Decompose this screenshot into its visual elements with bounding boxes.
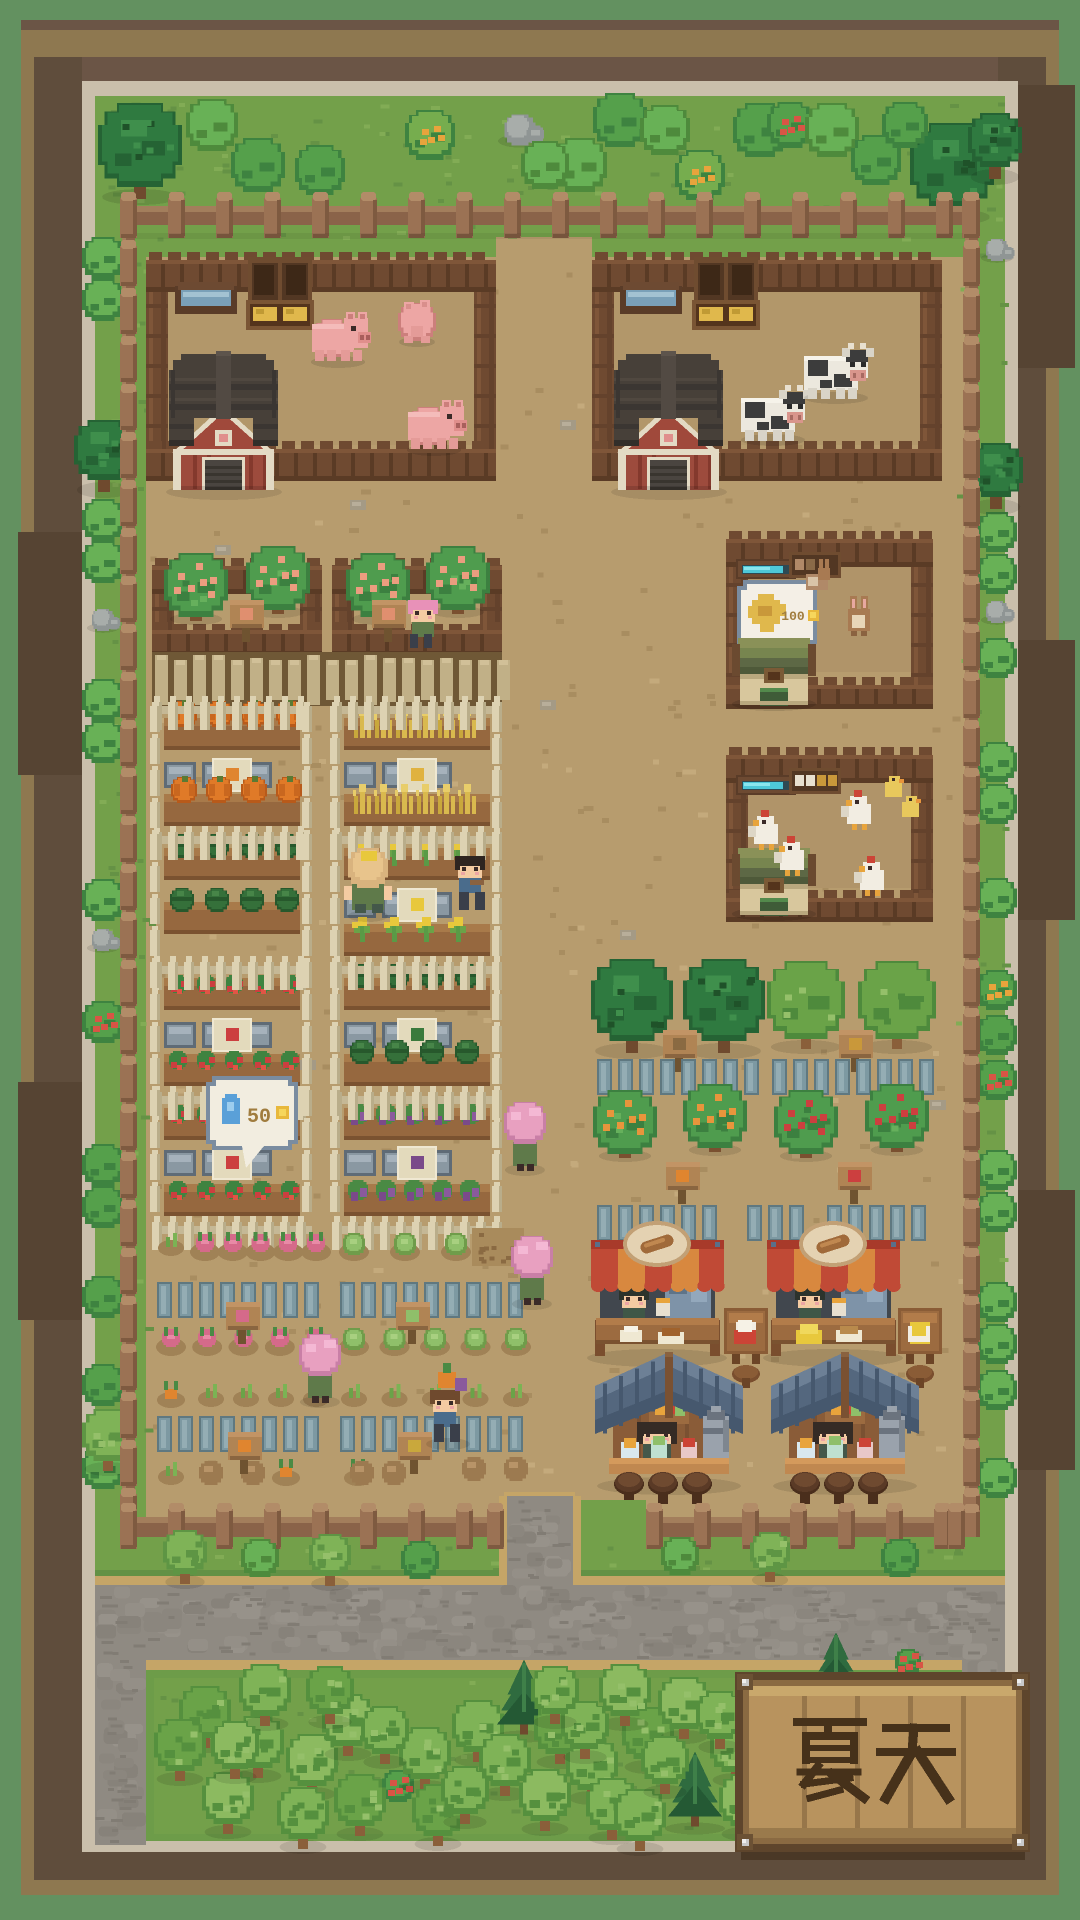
svg-text:50: 50 <box>247 1106 271 1129</box>
svg-text:100: 100 <box>781 609 805 624</box>
